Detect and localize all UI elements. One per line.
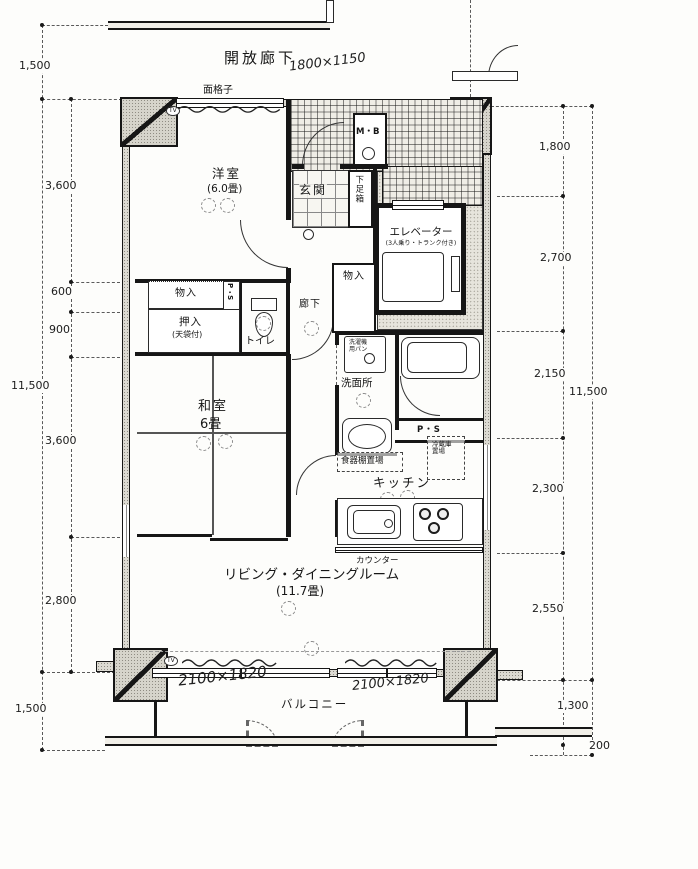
- dim-label: 1,300: [556, 700, 590, 713]
- dim-tick: [561, 329, 565, 333]
- dim-stub: [491, 106, 592, 107]
- entrance-wall-a: [292, 164, 304, 169]
- western-room-label: 洋室: [212, 167, 241, 181]
- dim-tick: [69, 670, 73, 674]
- japanese-room-size: 6畳: [200, 418, 221, 433]
- laundry-drain: [364, 353, 375, 364]
- wall-stub-southeast: [495, 670, 523, 680]
- sink-drain: [384, 519, 393, 528]
- dim-label: 2,700: [539, 252, 573, 265]
- dim-chain-right-outer: [592, 106, 593, 755]
- dim-tick: [561, 104, 565, 108]
- entrance-fixture: [303, 229, 314, 240]
- dim-tick: [590, 678, 594, 682]
- kitchen-label: キッチン: [373, 476, 431, 490]
- meter-box-label: M・B: [356, 128, 379, 138]
- wall-corridor-west: [286, 354, 291, 537]
- balcony-partition: [465, 702, 468, 736]
- tv-outlet-marker: TV: [164, 656, 178, 666]
- dim-tick: [561, 678, 565, 682]
- pipe-space-bath-label: P・S: [417, 426, 441, 436]
- wall-unit-east-upper: [373, 164, 377, 263]
- bath-door-arc: [400, 376, 440, 416]
- tatami-line: [212, 432, 214, 535]
- corridor-railing: [108, 21, 330, 30]
- dim-tick: [561, 743, 565, 747]
- dim-stub: [42, 99, 122, 100]
- washroom-label: 洗面所: [341, 377, 373, 389]
- dim-label: 1,500: [14, 703, 48, 716]
- japanese-room-window: [122, 505, 130, 557]
- light-fixture: [304, 321, 319, 336]
- dim-stub: [71, 537, 120, 538]
- balcony-railing-step: [495, 727, 592, 737]
- light-fixture: [356, 393, 371, 408]
- dim-tick: [590, 104, 594, 108]
- dim-stub: [71, 312, 120, 313]
- bathtub-inner: [407, 342, 467, 373]
- wall-toilet-east: [286, 283, 290, 354]
- corridor-railing-end: [326, 0, 334, 23]
- dim-label: 200: [588, 740, 611, 753]
- dim-tick: [40, 748, 44, 752]
- elevator-note: (3人乗り・トランク付き): [372, 240, 470, 247]
- hall-storage-label: 物入: [343, 271, 365, 283]
- wall-bath-south: [395, 418, 483, 421]
- wall-west: [122, 99, 130, 677]
- elevator-label: エレベーター: [378, 226, 464, 238]
- storage-label: 物入: [175, 288, 197, 300]
- open-corridor-label: 開放廊下: [224, 50, 296, 67]
- dim-stub: [42, 25, 108, 26]
- dim-stub: [71, 357, 120, 358]
- meter-fixture: [362, 147, 375, 160]
- light-fixture: [201, 198, 216, 213]
- living-dining-label: リビング・ダイニングルーム: [224, 568, 399, 584]
- shoe-cabinet-label: 下足箱: [353, 175, 363, 204]
- wall-east: [483, 99, 491, 677]
- dim-tick: [69, 535, 73, 539]
- dim-label: 1,800: [538, 141, 572, 154]
- dim-tick: [561, 551, 565, 555]
- counter-edge: [335, 547, 483, 553]
- dim-stub: [497, 680, 592, 681]
- elevator-door: [392, 200, 444, 210]
- elevator-car: [382, 252, 444, 302]
- light-fixture: [218, 434, 233, 449]
- dim-label: 2,300: [531, 483, 565, 496]
- dim-tick: [40, 23, 44, 27]
- stove-burner: [437, 508, 449, 520]
- dim-label: 3,600: [44, 180, 78, 193]
- dim-stub: [497, 331, 563, 332]
- column-southeast: [443, 648, 498, 702]
- dim-stub: [42, 672, 115, 673]
- counter-label: カウンター: [356, 557, 399, 567]
- elevator-rail: [451, 256, 460, 292]
- dim-chain-right-inner: [563, 106, 564, 755]
- dim-label: 11,500: [10, 380, 51, 393]
- light-fixture: [196, 436, 211, 451]
- light-fixture: [256, 316, 271, 331]
- laundry-pan-label: 洗濯機用パン: [349, 340, 370, 353]
- dim-stub: [497, 196, 563, 197]
- dim-tick: [561, 436, 565, 440]
- entrance-label: 玄関: [299, 184, 327, 198]
- balcony-label: バルコニー: [281, 698, 348, 711]
- corridor-label: 廊下: [299, 299, 321, 311]
- entrance-floor-tiles: [292, 170, 350, 228]
- balcony-partition: [154, 702, 157, 736]
- dim-tick: [69, 310, 73, 314]
- closet-label: 押入: [179, 316, 202, 328]
- kitchen-door-arc: [296, 455, 336, 495]
- toilet-tank: [251, 298, 277, 311]
- washroom-sliding-door: [336, 345, 337, 385]
- column-northwest: [120, 97, 178, 147]
- western-room-door-arc: [240, 220, 288, 268]
- curtain-wave-icon: [178, 104, 284, 113]
- dim-label: 11,500: [568, 386, 609, 399]
- wall-washroom-bath-divider: [395, 333, 399, 430]
- dim-label: 3,600: [44, 435, 78, 448]
- balcony-railing: [105, 736, 497, 746]
- dim-stub: [497, 553, 563, 554]
- dim-stub: [42, 750, 105, 751]
- cupboard-space-label: 食器棚置場: [341, 457, 384, 467]
- dim-tick: [561, 194, 565, 198]
- dim-tick: [590, 753, 594, 757]
- japanese-room-label: 和室: [198, 400, 228, 415]
- curtain-wave-icon: [345, 657, 440, 667]
- wall-corridor-east-a: [335, 333, 339, 345]
- stove-burner: [428, 522, 440, 534]
- toilet-label: トイレ: [245, 336, 275, 348]
- entrance-wall-b: [340, 164, 388, 169]
- dim-stub: [530, 755, 592, 756]
- closet-note: (天袋付): [172, 330, 202, 339]
- wall-corridor-east-b: [335, 385, 339, 455]
- light-fixture: [220, 198, 235, 213]
- dim-tick: [69, 97, 73, 101]
- floor-plan: 1,500 3,600 600 900 11,500 3,600 2,800 1…: [0, 0, 698, 869]
- dim-tick: [69, 280, 73, 284]
- sliding-door-japanese-room-a: [137, 534, 212, 537]
- stove-burner: [419, 508, 431, 520]
- washbasin-bowl: [348, 424, 386, 449]
- dim-stub: [71, 282, 120, 283]
- pipe-space-label: P・S: [226, 283, 234, 300]
- handwritten-top-dimension: 1800×1150: [288, 51, 366, 75]
- dim-label: 2,800: [44, 595, 78, 608]
- dim-label: 2,550: [531, 603, 565, 616]
- light-fixture: [304, 641, 319, 656]
- dim-label: 2,150: [533, 368, 567, 381]
- dim-tick: [40, 670, 44, 674]
- living-dining-size: (11.7畳): [276, 585, 324, 599]
- dim-label: 600: [50, 286, 73, 299]
- dim-label: 900: [48, 324, 71, 337]
- dim-label: 1,500: [18, 60, 52, 73]
- dim-tick: [69, 355, 73, 359]
- light-fixture: [281, 601, 296, 616]
- dim-stub: [497, 438, 563, 439]
- wall-western-east-a: [286, 99, 291, 220]
- boundary-dashed-line: [470, 0, 471, 97]
- tv-outlet-marker: TV: [166, 106, 180, 116]
- kitchen-window: [483, 445, 491, 530]
- dim-tick: [40, 97, 44, 101]
- refrigerator-space-label: 冷蔵庫置場: [432, 441, 454, 456]
- western-room-size: (6.0畳): [207, 183, 242, 195]
- window-grille-label: 面格子: [203, 85, 233, 97]
- neighbor-wall-stub: [452, 71, 518, 81]
- sliding-door-japanese-room-b: [210, 538, 288, 541]
